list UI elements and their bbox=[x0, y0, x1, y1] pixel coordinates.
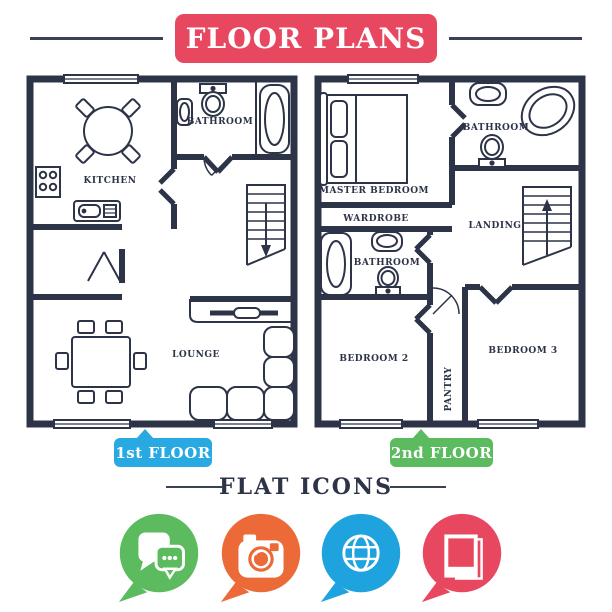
bathroom-label: BATHROOM bbox=[354, 258, 420, 268]
icons-rule-right bbox=[390, 486, 446, 488]
stove-icon bbox=[36, 167, 60, 197]
wardrobe-label: WARDROBE bbox=[342, 214, 409, 224]
page-title: FLOOR PLANS bbox=[175, 14, 437, 63]
bedroom2-label: BEDROOM 2 bbox=[339, 354, 408, 364]
icons-heading: FLAT ICONS bbox=[0, 474, 612, 500]
lounge-label: LOUNGE bbox=[172, 350, 220, 360]
title-rule-right bbox=[449, 37, 582, 40]
kitchen-sink-icon bbox=[74, 201, 120, 221]
camera-icon bbox=[212, 506, 310, 608]
second-floor-plan: MASTER BEDROOM BATHROOM WARDROBE LANDING… bbox=[312, 74, 588, 430]
bathroom-label: BATHROOM bbox=[187, 117, 253, 127]
photo-frames-icon bbox=[413, 506, 511, 608]
kitchen-label: KITCHEN bbox=[84, 176, 137, 186]
globe-icon bbox=[312, 506, 410, 608]
first-floor-plan: KITCHEN BATHROOM LOUNGE bbox=[24, 74, 300, 430]
pantry-label: PANTRY bbox=[444, 367, 454, 412]
poster-canvas: FLOOR PLANS bbox=[0, 0, 612, 612]
first-floor-walls bbox=[30, 79, 294, 424]
kitchen-table-set bbox=[75, 98, 140, 163]
second-floor-badge: 2nd FLOOR bbox=[390, 438, 493, 467]
bubble-bg bbox=[322, 514, 400, 592]
landing-label: LANDING bbox=[469, 221, 522, 231]
master-bedroom-label: MASTER BEDROOM bbox=[319, 186, 429, 196]
chat-icon bbox=[110, 506, 208, 608]
bathroom-ensuite-label: BATHROOM bbox=[463, 123, 529, 133]
bedroom3-label: BEDROOM 3 bbox=[488, 346, 557, 356]
double-bed-icon bbox=[320, 93, 407, 185]
title-rule-left bbox=[30, 37, 163, 40]
first-floor-badge: 1st FLOOR bbox=[114, 438, 212, 467]
